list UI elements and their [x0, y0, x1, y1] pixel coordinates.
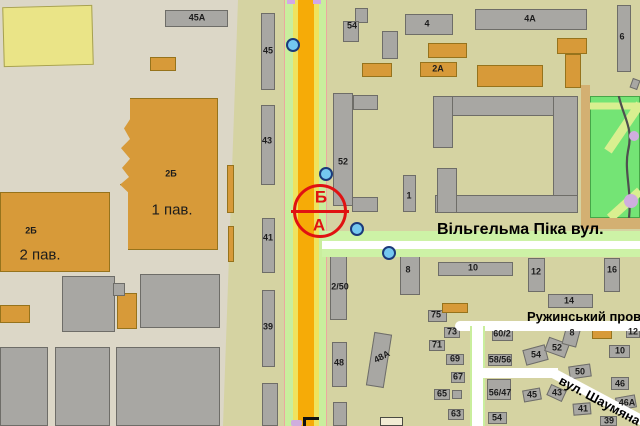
building-label: 1 [406, 192, 411, 201]
crossing-mark [313, 0, 321, 4]
road-end-bracket [303, 417, 306, 426]
building [428, 43, 467, 58]
building-label: 10 [468, 264, 478, 273]
park-paths [590, 96, 640, 218]
crossing-mark [287, 0, 295, 4]
building-label: 71 [432, 341, 442, 350]
building-label: 2А [432, 65, 444, 74]
building [0, 347, 48, 426]
building-label: 39 [604, 417, 614, 426]
street-pika-verge [322, 249, 640, 257]
building [452, 390, 462, 399]
building [352, 197, 378, 212]
building-label: 52 [552, 344, 562, 353]
park-lavender-spot [629, 131, 639, 141]
building [442, 303, 468, 313]
map-pin-marker[interactable] [350, 222, 364, 236]
building-label: 63 [451, 410, 461, 419]
building-label: 12 [531, 268, 541, 277]
map-pin-marker[interactable] [319, 167, 333, 181]
building-label: 56/47 [489, 389, 512, 398]
building [630, 78, 640, 90]
building-label: 12 [628, 328, 638, 337]
building-label: 73 [447, 328, 457, 337]
building-label: 41 [263, 234, 273, 243]
map-canvas[interactable]: Вільгельма Піка вул. Ружинський пров. ву… [0, 0, 640, 426]
building-label: 58/56 [489, 356, 512, 365]
building-label: 52 [338, 158, 348, 167]
building [557, 38, 587, 54]
building-label: 10 [615, 347, 625, 356]
building-label: 54 [492, 414, 502, 423]
building-label: 48 [334, 359, 344, 368]
street-label-ruzhynskyi: Ружинський пров. [527, 310, 640, 323]
building-label: 69 [450, 355, 460, 364]
building [353, 95, 378, 110]
building [228, 226, 234, 262]
building [116, 347, 220, 426]
building-label: 39 [263, 323, 273, 332]
building-label: 67 [453, 373, 463, 382]
building-label: 43 [262, 137, 272, 146]
park-lavender-spot [624, 194, 638, 208]
street-label-pika: Вільгельма Піка вул. [437, 222, 604, 238]
building [62, 276, 115, 332]
poi-label-top: Б [315, 189, 327, 206]
building [117, 293, 137, 329]
road-verge-green [284, 0, 293, 426]
building-label: 14 [564, 297, 574, 306]
building-label: 45 [263, 47, 273, 56]
park-border-strip [581, 85, 590, 228]
building-label: 2 пав. [19, 248, 60, 263]
building [433, 96, 453, 148]
building [437, 168, 457, 213]
building-label: 50 [575, 368, 585, 377]
building [477, 65, 543, 87]
building-label: 4А [524, 15, 536, 24]
building-label: 46 [615, 380, 625, 389]
building-label: 2Б [25, 227, 36, 236]
building [0, 305, 30, 323]
building [565, 54, 581, 88]
building-label: 43 [552, 389, 562, 398]
building-label: 4 [424, 20, 429, 29]
building-label: 65 [437, 390, 447, 399]
building-label: 41 [578, 405, 588, 414]
street-pika [322, 241, 640, 249]
building-label: 16 [607, 266, 617, 275]
building-label: 45А [189, 14, 206, 23]
building [2, 5, 94, 67]
building-label: 1 пав. [151, 203, 192, 218]
building [362, 63, 392, 77]
building [150, 57, 176, 71]
building-label: 2/50 [331, 283, 349, 292]
building [140, 274, 220, 328]
building [262, 218, 275, 273]
building-label: 6 [619, 33, 624, 42]
building [604, 258, 620, 292]
building [382, 31, 398, 59]
street-connector [478, 368, 558, 378]
map-pin-marker[interactable] [382, 246, 396, 260]
building [227, 165, 234, 213]
building [55, 347, 110, 426]
building [380, 417, 403, 426]
building-label: 54 [531, 351, 541, 360]
map-pin-marker[interactable] [286, 38, 300, 52]
building-label: 54 [347, 22, 357, 31]
building-label: 75 [431, 311, 441, 320]
building-label: 8 [405, 266, 410, 275]
poi-label-bottom: А [313, 217, 325, 234]
poi-ring-divider [291, 210, 349, 213]
building-label: 8 [569, 329, 574, 338]
building [113, 283, 125, 296]
building-label: 60/2 [493, 330, 511, 339]
road-end-lavender [291, 420, 302, 426]
building-label: 2Б [165, 170, 176, 179]
building [333, 402, 347, 426]
building-label: 45 [527, 391, 537, 400]
building [262, 383, 278, 426]
